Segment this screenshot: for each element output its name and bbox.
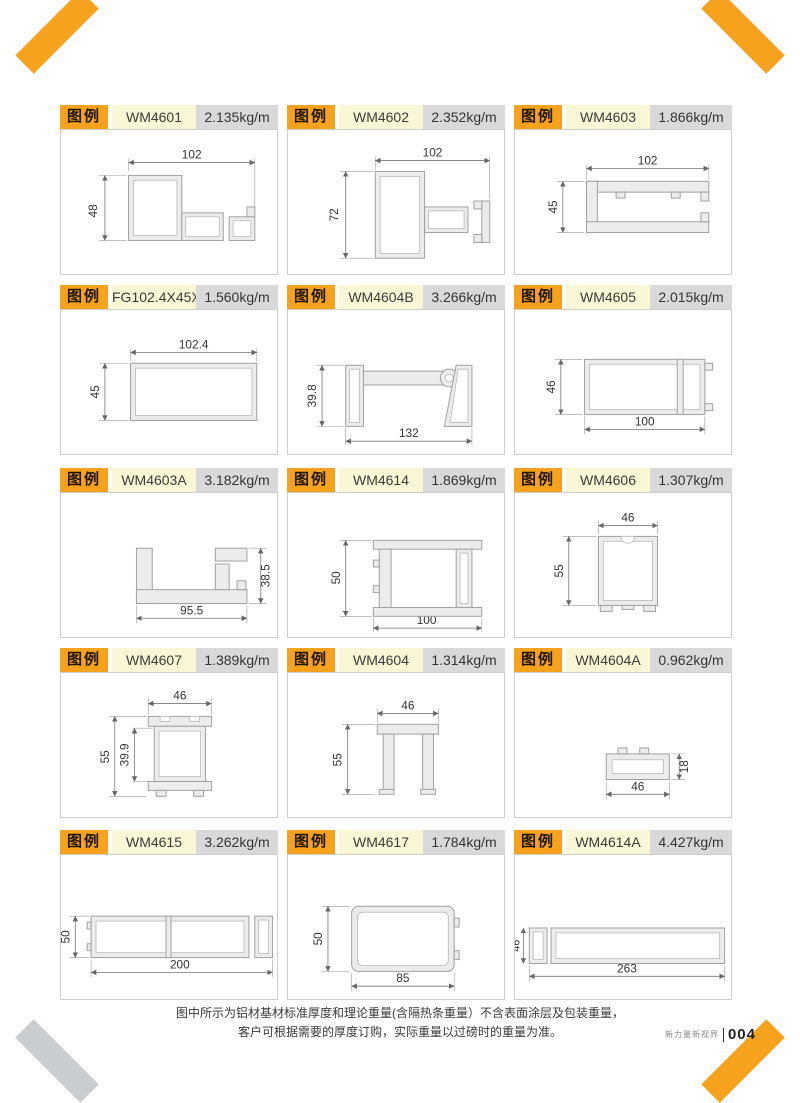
cell-header: 图例 WM4615 3.262kg/m (60, 830, 278, 854)
profile-cell-wm4606: 图例 WM4606 1.307kg/m 46 55 (514, 468, 732, 638)
cell-header: 图例 WM4602 2.352kg/m (287, 105, 505, 129)
dim-label: 55 (552, 564, 566, 578)
legend-badge: 图例 (60, 830, 108, 854)
profile-cell-wm4604: 图例 WM4604 1.314kg/m 46 55 (287, 648, 505, 818)
page-number-divider (723, 1028, 724, 1042)
unit-weight: 0.962kg/m (650, 648, 732, 672)
dim-label: 46 (515, 940, 522, 952)
dim-label: 50 (311, 932, 325, 946)
unit-weight: 1.314kg/m (423, 648, 505, 672)
legend-badge: 图例 (60, 648, 108, 672)
footer-note-line1: 图中所示为铝材基材标准厚度和理论重量(含隔热条重量）不含表面涂层及包装重量， (0, 1004, 800, 1023)
dim-label: 55 (331, 753, 345, 767)
dim-label: 102 (182, 148, 202, 162)
cell-header: 图例 WM4614 1.869kg/m (287, 468, 505, 492)
profile-drawing: 18 46 (514, 672, 732, 818)
page-footer: 新力量新视界 004 (665, 1026, 756, 1043)
cell-header: 图例 WM4614A 4.427kg/m (514, 830, 732, 854)
legend-badge: 图例 (287, 105, 335, 129)
unit-weight: 3.182kg/m (196, 468, 278, 492)
dim-label: 46 (173, 689, 187, 703)
profile-cell-wm4604a: 图例 WM4604A 0.962kg/m 18 46 (514, 648, 732, 818)
profile-cell-wm4603: 图例 WM4603 1.866kg/m 102 45 (514, 105, 732, 275)
profile-cell-wm4615: 图例 WM4615 3.262kg/m 50 200 (60, 830, 278, 1000)
cell-header: 图例 WM4604A 0.962kg/m (514, 648, 732, 672)
dim-label: 18 (677, 760, 691, 774)
profile-cell-wm4601: 图例 WM4601 2.135kg/m 102 48 (60, 105, 278, 275)
legend-badge: 图例 (514, 285, 562, 309)
dim-label: 38.5 (259, 564, 273, 587)
dim-label: 72 (327, 208, 341, 221)
legend-badge: 图例 (287, 648, 335, 672)
legend-badge: 图例 (60, 105, 108, 129)
cell-header: 图例 WM4601 2.135kg/m (60, 105, 278, 129)
profile-cell-wm4614: 图例 WM4614 1.869kg/m 50 100 (287, 468, 505, 638)
profile-drawing: 46 55 39.9 (60, 672, 278, 818)
model-code: WM4617 (339, 830, 423, 854)
unit-weight: 2.352kg/m (423, 105, 505, 129)
cell-header: 图例 WM4605 2.015kg/m (514, 285, 732, 309)
dim-label: 85 (396, 971, 410, 985)
model-code: WM4604B (339, 285, 423, 309)
dim-label: 100 (635, 414, 655, 428)
model-code: WM4604A (566, 648, 650, 672)
unit-weight: 1.784kg/m (423, 830, 505, 854)
dim-label: 102 (638, 154, 658, 168)
model-code: WM4607 (112, 648, 196, 672)
cell-header: 图例 WM4604 1.314kg/m (287, 648, 505, 672)
dim-label: 132 (399, 426, 419, 440)
dim-label: 45 (546, 200, 560, 214)
profile-drawing: 50 85 (287, 854, 505, 1000)
dim-label: 102.4 (179, 337, 209, 351)
cell-header: 图例 WM4617 1.784kg/m (287, 830, 505, 854)
corner-ribbon-top-right (701, 0, 784, 74)
legend-badge: 图例 (60, 468, 108, 492)
dim-label: 102 (423, 146, 443, 160)
model-code: WM4605 (566, 285, 650, 309)
model-code: WM4601 (112, 105, 196, 129)
legend-badge: 图例 (514, 105, 562, 129)
unit-weight: 1.307kg/m (650, 468, 732, 492)
dim-label: 50 (61, 930, 72, 944)
corner-ribbon-top-left (15, 0, 98, 74)
legend-badge: 图例 (514, 468, 562, 492)
profile-drawing: 39.8 132 (287, 309, 505, 455)
profile-cell-wm4604b: 图例 WM4604B 3.266kg/m 39.8 132 (287, 285, 505, 455)
profile-cell-wm4603a: 图例 WM4603A 3.182kg/m 38.5 95.5 (60, 468, 278, 638)
profile-cell-wm4617: 图例 WM4617 1.784kg/m 50 85 (287, 830, 505, 1000)
model-code: WM4603 (566, 105, 650, 129)
dim-label: 50 (329, 571, 343, 585)
dim-label: 55 (98, 750, 112, 764)
profile-drawing: 46 55 (514, 492, 732, 638)
cell-header: 图例 WM4607 1.389kg/m (60, 648, 278, 672)
profile-drawing: 38.5 95.5 (60, 492, 278, 638)
dim-label: 46 (621, 511, 635, 525)
profile-drawing: 46 55 (287, 672, 505, 818)
cell-header: 图例 WM4606 1.307kg/m (514, 468, 732, 492)
legend-badge: 图例 (514, 648, 562, 672)
profile-drawing: 46 37 263 (514, 854, 732, 1000)
profile-drawing: 102 72 (287, 129, 505, 275)
unit-weight: 2.135kg/m (196, 105, 278, 129)
model-code: FG102.4X45X2.0 (112, 285, 196, 309)
page-number: 004 (728, 1026, 756, 1043)
unit-weight: 4.427kg/m (650, 830, 732, 854)
model-code: WM4614A (566, 830, 650, 854)
model-code: WM4614 (339, 468, 423, 492)
legend-badge: 图例 (514, 830, 562, 854)
profile-drawing: 102 48 (60, 129, 278, 275)
unit-weight: 2.015kg/m (650, 285, 732, 309)
profile-drawing: 102.4 45 (60, 309, 278, 455)
unit-weight: 1.866kg/m (650, 105, 732, 129)
model-code: WM4603A (112, 468, 196, 492)
profile-cell-wm4605: 图例 WM4605 2.015kg/m 46 100 (514, 285, 732, 455)
unit-weight: 1.560kg/m (196, 285, 278, 309)
dim-label: 46 (544, 380, 558, 394)
cell-header: 图例 FG102.4X45X2.0 1.560kg/m (60, 285, 278, 309)
legend-badge: 图例 (287, 285, 335, 309)
dim-label: 95.5 (180, 603, 203, 617)
legend-badge: 图例 (60, 285, 108, 309)
profile-drawing: 46 100 (514, 309, 732, 455)
dim-label: 39.9 (118, 743, 132, 766)
profile-cell-wm4602: 图例 WM4602 2.352kg/m 102 72 (287, 105, 505, 275)
brand-tagline: 新力量新视界 (665, 1029, 719, 1040)
model-code: WM4604 (339, 648, 423, 672)
model-code: WM4602 (339, 105, 423, 129)
profile-drawing: 102 45 (514, 129, 732, 275)
unit-weight: 3.262kg/m (196, 830, 278, 854)
dim-label: 200 (170, 957, 190, 971)
profile-cell-fg102: 图例 FG102.4X45X2.0 1.560kg/m 102.4 45 (60, 285, 278, 455)
cell-header: 图例 WM4604B 3.266kg/m (287, 285, 505, 309)
model-code: WM4606 (566, 468, 650, 492)
dim-label: 46 (631, 779, 645, 793)
profile-drawing: 50 100 (287, 492, 505, 638)
dim-label: 45 (88, 385, 102, 399)
unit-weight: 1.869kg/m (423, 468, 505, 492)
legend-badge: 图例 (287, 830, 335, 854)
profile-drawing: 50 200 (60, 854, 278, 1000)
legend-badge: 图例 (287, 468, 335, 492)
cell-header: 图例 WM4603 1.866kg/m (514, 105, 732, 129)
dim-label: 39.8 (305, 384, 319, 407)
unit-weight: 3.266kg/m (423, 285, 505, 309)
unit-weight: 1.389kg/m (196, 648, 278, 672)
dim-label: 48 (86, 204, 100, 218)
profile-cell-wm4614a: 图例 WM4614A 4.427kg/m 46 37 263 (514, 830, 732, 1000)
model-code: WM4615 (112, 830, 196, 854)
cell-header: 图例 WM4603A 3.182kg/m (60, 468, 278, 492)
profile-cell-wm4607: 图例 WM4607 1.389kg/m 46 55 39.9 (60, 648, 278, 818)
dim-label: 46 (401, 698, 415, 712)
